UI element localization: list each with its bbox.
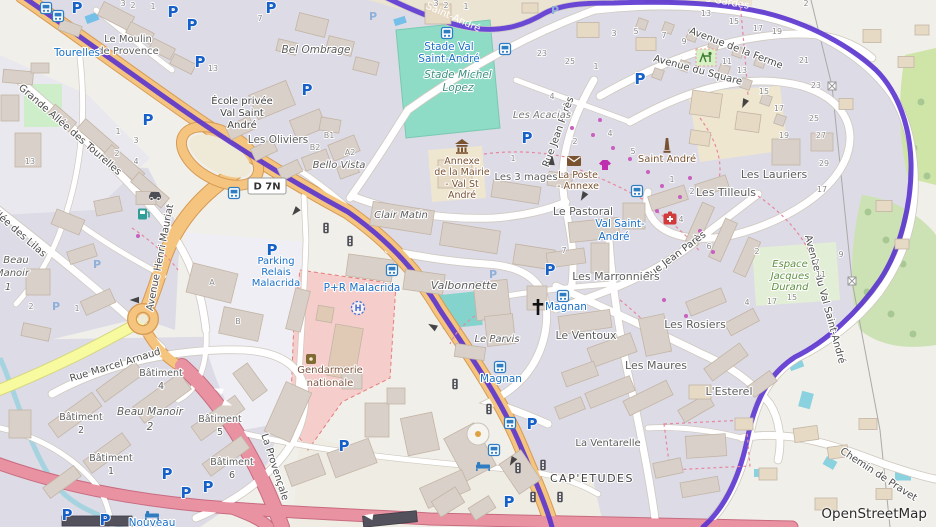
label-l-esterel: L'Esterel <box>705 385 752 398</box>
house-number: 1 <box>74 304 79 313</box>
shop-node-icon <box>678 195 682 199</box>
shop-node-icon <box>711 250 715 254</box>
label-stade-michel: Stade Michel <box>424 69 492 81</box>
label-nouveau[interactable]: Nouveau <box>129 517 176 527</box>
label-les-marronniers: Les Marronniers <box>572 270 660 283</box>
shop-node-icon <box>688 176 692 180</box>
label-2: 2 <box>78 425 84 436</box>
bus-icon[interactable] <box>442 28 453 39</box>
building <box>26 269 50 295</box>
house-number: 25 <box>809 114 819 123</box>
house-number: 15 <box>729 17 739 26</box>
label-les-maures: Les Maures <box>625 359 687 372</box>
building <box>387 388 405 404</box>
parking-icon[interactable]: P <box>302 81 313 99</box>
bus-icon[interactable] <box>495 362 506 373</box>
label-magnan[interactable]: Magnan <box>545 301 587 313</box>
house-number: 5 <box>633 27 638 36</box>
building <box>685 434 726 459</box>
signal-icon <box>540 460 545 470</box>
label-annexe: Annexe <box>444 156 480 167</box>
parking-icon[interactable]: P <box>527 415 538 433</box>
bus-icon[interactable] <box>387 265 398 276</box>
house-number: 2 <box>114 149 119 158</box>
label-le-ventoux: Le Ventoux <box>555 329 617 342</box>
label-les-3-mages: Les 3 mages <box>494 172 557 183</box>
label-beau-manoir: Beau Manoir <box>117 406 184 418</box>
circled-h-icon[interactable]: H <box>352 302 365 315</box>
label-le-moulin: Le Moulin <box>104 34 152 45</box>
label-nationale: nationale <box>307 378 354 389</box>
parking-icon[interactable]: P <box>100 511 111 527</box>
label-relais: Relais <box>261 267 291 278</box>
building <box>1 95 19 121</box>
building <box>689 90 722 118</box>
power-node-icon <box>828 82 836 90</box>
house-number: 4 <box>549 92 554 101</box>
house-number: 17 <box>774 104 784 113</box>
house-number: 9 <box>681 37 686 46</box>
house-number: 1 <box>593 62 598 71</box>
house-number: 1 <box>669 175 674 184</box>
house-number: 7 <box>814 258 819 267</box>
label-cole-priv-e: École privée <box>211 94 273 107</box>
label-les-lauriers: Les Lauriers <box>741 168 808 181</box>
house-number: 2 <box>689 187 694 196</box>
label-durand: Durand <box>772 282 810 293</box>
label-beau: Beau <box>3 255 28 266</box>
label-de-provence: de Provence <box>97 46 159 57</box>
shop-node-icon <box>136 234 140 238</box>
house-number: 2 <box>443 1 448 10</box>
house-number: A <box>209 278 215 287</box>
label-val-st: - Val St <box>445 179 479 190</box>
label-5: 5 <box>217 427 223 438</box>
parking-icon-small[interactable]: P <box>93 258 101 271</box>
building <box>2 69 33 85</box>
shop-node-icon <box>655 209 659 213</box>
building <box>62 516 132 526</box>
house-number: 13 <box>208 64 218 73</box>
label-le-pastoral: Le Pastoral <box>553 205 613 218</box>
house-number: 6 <box>706 242 711 251</box>
label-andr: André <box>448 190 476 201</box>
shop-node-icon <box>646 170 650 174</box>
label-b-timent: Bâtiment <box>59 412 103 423</box>
parking-icon[interactable]: P <box>266 0 277 17</box>
parking-icon[interactable]: P <box>181 484 192 502</box>
signal-icon <box>486 404 491 414</box>
tree-icon <box>924 173 931 180</box>
parking-icon-small[interactable]: P <box>551 4 559 17</box>
label-val-saint[interactable]: Val Saint- <box>595 218 645 230</box>
parking-icon[interactable]: P <box>203 478 214 496</box>
bus-icon[interactable] <box>53 11 64 22</box>
map-svg[interactable]: Grande Allée des TourellesAllée des Lila… <box>0 0 936 527</box>
label-cap-etudes: CAP'ETUDES <box>550 472 634 485</box>
parking-icon-small[interactable]: P <box>52 300 60 313</box>
house-number: 3 <box>133 136 138 145</box>
label-la-poste: La Poste <box>558 170 598 181</box>
signal-icon <box>323 223 328 233</box>
building <box>876 201 892 212</box>
building <box>365 403 389 437</box>
building <box>636 38 656 51</box>
house-number: 3 <box>433 0 438 8</box>
building <box>793 425 819 442</box>
label-annexe: - Annexe <box>557 181 599 192</box>
label-les-rosiers: Les Rosiers <box>664 318 726 331</box>
house-number: 13 <box>701 9 711 18</box>
shop-node-icon <box>591 133 595 137</box>
label-magnan[interactable]: Magnan <box>480 373 522 385</box>
house-number: 17 <box>767 297 777 306</box>
building <box>9 410 31 438</box>
tree-icon <box>910 331 917 338</box>
house-number: 1 <box>510 154 515 163</box>
house-number: 1 <box>115 127 120 136</box>
map-canvas[interactable]: Grande Allée des TourellesAllée des Lila… <box>0 0 936 527</box>
building <box>522 3 538 13</box>
shop-node-icon <box>611 146 615 150</box>
parking-icon[interactable]: P <box>339 437 350 455</box>
bus-icon[interactable] <box>500 44 511 55</box>
house-number: 1 <box>463 2 468 11</box>
label-les-acacias: Les Acacias <box>513 110 571 121</box>
road-shield-label: D 7N <box>253 182 280 193</box>
building <box>759 468 777 480</box>
road-lot-north-lane <box>304 196 306 240</box>
parking-icon[interactable]: P <box>187 16 198 34</box>
bus-icon[interactable] <box>489 445 500 456</box>
building <box>689 130 711 147</box>
label-andr[interactable]: André <box>598 231 629 243</box>
label-clair-matin: Clair Matin <box>374 210 428 221</box>
house-number: B1 <box>324 131 335 140</box>
house-number: B <box>235 317 241 326</box>
building <box>31 63 49 73</box>
house-number: 15 <box>759 87 769 96</box>
label-valbonnette: Valbonnette <box>431 279 498 292</box>
parking-icon[interactable]: P <box>195 53 206 71</box>
label-les-oliviers: Les Oliviers <box>248 134 308 146</box>
bus-icon[interactable] <box>505 418 516 429</box>
bus-icon[interactable] <box>41 3 52 14</box>
house-number: 7 <box>561 246 566 255</box>
parking-icon[interactable]: P <box>635 70 646 88</box>
shop-node-icon <box>628 157 632 161</box>
mail-icon[interactable] <box>567 156 581 166</box>
gendarmerie-icon[interactable] <box>306 354 316 364</box>
label-stade-val[interactable]: Stade Val <box>424 41 473 53</box>
house-number: 29 <box>819 159 829 168</box>
house-number: 13 <box>25 157 35 166</box>
building <box>859 419 877 430</box>
label-1: 1 <box>108 466 114 477</box>
roundabout-island <box>138 314 148 324</box>
house-number: 4 <box>133 157 138 166</box>
house-number: 1 <box>150 2 155 11</box>
house-number: 23 <box>811 81 821 90</box>
house-number: 5 <box>630 147 635 156</box>
signal-icon <box>452 379 457 389</box>
label-p-r-malacrida[interactable]: P+R Malacrida <box>324 282 401 294</box>
house-number: 7 <box>661 31 666 40</box>
signal-icon <box>347 236 352 246</box>
playground-icon[interactable] <box>696 49 716 66</box>
house-number: 25 <box>565 57 575 66</box>
house-number: 2 <box>754 247 759 256</box>
tree-icon <box>918 99 925 106</box>
building <box>915 25 929 35</box>
label-b-timent: Bâtiment <box>139 368 183 379</box>
house-number: 23 <box>537 49 547 58</box>
building <box>898 57 914 68</box>
house-number: 21 <box>799 56 809 65</box>
building <box>316 305 334 323</box>
signal-icon <box>530 492 535 502</box>
bus-icon[interactable] <box>229 188 240 199</box>
label-b-timent: Bâtiment <box>210 457 254 468</box>
house-number: 11 <box>722 57 732 66</box>
label-2: 2 <box>147 421 154 433</box>
building <box>735 418 753 430</box>
label-jacques: Jacques <box>769 271 810 282</box>
label-manoir: Manoir <box>0 268 30 279</box>
bus-icon[interactable] <box>632 186 643 197</box>
svg-text:H: H <box>354 304 361 314</box>
building <box>839 99 853 110</box>
parking-icon[interactable]: P <box>504 493 515 511</box>
label-gendarmerie: Gendarmerie <box>297 365 363 376</box>
house-number: 4 <box>744 298 749 307</box>
tree-icon <box>888 311 895 318</box>
label-le-parvis: Le Parvis <box>474 334 519 345</box>
parking-icon-small[interactable]: P <box>489 268 497 281</box>
building <box>863 30 881 43</box>
house-number: 11 <box>816 270 826 279</box>
label-saint-andr: Saint André <box>638 153 696 165</box>
shop-node-icon <box>598 118 602 122</box>
building <box>577 23 599 38</box>
label-de-la-mairie: de la Mairie <box>434 167 490 178</box>
label-saint-andr[interactable]: Saint-André <box>418 53 479 65</box>
house-number: 2 <box>803 0 808 8</box>
house-number: 4 <box>607 129 612 138</box>
house-number: 4 <box>678 215 683 224</box>
house-number: 19 <box>772 27 782 36</box>
label-andr: André <box>227 119 257 131</box>
house-number: 17 <box>817 185 827 194</box>
parking-icon[interactable]: P <box>162 465 173 483</box>
tree-icon <box>883 237 890 244</box>
label-la-ventarelle: La Ventarelle <box>575 438 640 449</box>
parking-icon[interactable]: P <box>545 261 556 279</box>
house-number: A2 <box>345 148 356 157</box>
building <box>895 239 909 249</box>
label-val-saint: Val Saint <box>220 108 264 119</box>
parking-icon-small[interactable]: P <box>369 10 377 23</box>
label-tourelles[interactable]: Tourelles <box>53 47 100 59</box>
building <box>735 111 761 132</box>
house-number: 9 <box>838 250 843 259</box>
label-b-timent: Bâtiment <box>89 453 133 464</box>
power-node-icon <box>848 277 856 285</box>
parking-icon[interactable]: P <box>267 241 278 259</box>
label-lopez: Lopez <box>443 82 474 94</box>
house-number: 3 <box>120 0 125 8</box>
house-number: 2 <box>28 302 33 311</box>
house-number: 2 <box>572 137 577 146</box>
house-number: 7 <box>257 14 262 23</box>
label-4: 4 <box>158 381 164 392</box>
parking-icon[interactable]: P <box>168 3 179 21</box>
label-bello-vista: Bello Vista <box>313 160 366 171</box>
building <box>591 243 609 273</box>
house-number: 19 <box>779 131 789 140</box>
label-bel-ombrage: Bel Ombrage <box>282 44 351 56</box>
parking-icon[interactable]: P <box>522 129 533 147</box>
building <box>772 139 800 165</box>
building <box>876 489 892 500</box>
signal-icon <box>557 492 562 502</box>
house-number: 15 <box>787 293 797 302</box>
label-b-timent: Bâtiment <box>198 414 242 425</box>
label-les-tilleuls: Les Tilleuls <box>696 186 756 199</box>
house-number: 3 <box>611 29 616 38</box>
house-number: 2 <box>130 1 135 10</box>
parking-icon[interactable]: P <box>72 0 83 17</box>
house-number: 13 <box>737 66 747 75</box>
signal-icon <box>515 463 520 473</box>
house-number: B2 <box>310 143 321 152</box>
tree-icon <box>865 209 872 216</box>
bus-icon[interactable] <box>558 291 569 302</box>
shop-node-icon <box>660 184 664 188</box>
shop-node-icon <box>662 298 666 302</box>
house-number: 17 <box>753 24 763 33</box>
house-number: 27 <box>816 131 826 140</box>
parking-icon[interactable]: P <box>62 506 73 524</box>
parking-icon[interactable]: P <box>143 111 154 129</box>
shop-node-icon <box>570 126 574 130</box>
label-malacrida: Malacrida <box>252 278 301 289</box>
label-1: 1 <box>5 282 11 293</box>
attribution[interactable]: OpenStreetMap <box>821 506 927 522</box>
label-6: 6 <box>229 470 235 481</box>
tank-dot <box>475 431 481 437</box>
label-espace: Espace <box>772 259 808 270</box>
